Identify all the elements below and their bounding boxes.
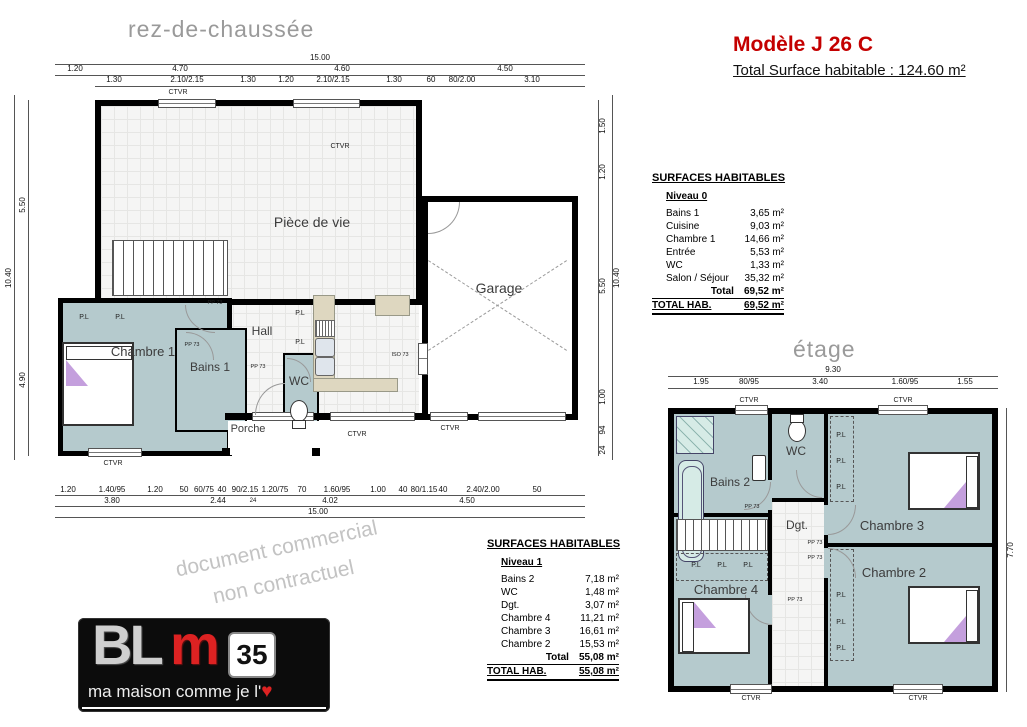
wall <box>768 625 772 686</box>
door-tag: PP 73 <box>808 555 823 562</box>
room-label-chambre2: Chambre 2 <box>862 565 926 580</box>
row-value: 3,07 m² <box>585 599 619 612</box>
room-label-bains2: Bains 2 <box>710 475 750 489</box>
closet-tag: P.L <box>691 562 701 569</box>
dim-label: 7.70 <box>1007 542 1015 558</box>
logo-tagline: ma maison comme je l'♥ <box>88 681 273 703</box>
closet-tag: P.L <box>836 645 846 652</box>
shower-icon <box>676 416 714 454</box>
room-label-chambre3: Chambre 3 <box>860 518 924 533</box>
wall <box>772 498 824 502</box>
logo-m-text: m <box>170 612 220 677</box>
dim-line <box>668 388 998 389</box>
row-name: WC <box>501 586 518 599</box>
row-name: Dgt. <box>501 599 519 612</box>
room-label-chambre4: Chambre 4 <box>694 582 758 597</box>
blm35-logo: BL m 35 ma maison comme je l'♥ <box>78 618 330 712</box>
logo-bl-text: BL <box>92 612 161 677</box>
stairs <box>676 519 768 551</box>
table-heading: SURFACES HABITABLES <box>487 538 619 550</box>
room-label-dgt: Dgt. <box>786 518 808 532</box>
window <box>893 684 943 694</box>
table-level: Niveau 1 <box>501 557 619 568</box>
closet-tag: P.L <box>836 432 846 439</box>
table-row: Dgt.3,07 m² <box>487 599 619 612</box>
toilet-icon <box>788 420 806 442</box>
wall <box>824 414 828 505</box>
wall <box>824 578 828 686</box>
table-row: WC1,48 m² <box>487 586 619 599</box>
bed-fold <box>944 482 966 508</box>
window <box>730 684 772 694</box>
bed-pillow <box>966 590 978 642</box>
dim-label: 1.55 <box>956 378 974 386</box>
table-row: Chambre 316,61 m² <box>487 625 619 638</box>
logo-tagline-text: ma maison comme je l' <box>88 682 261 701</box>
bed-fold <box>944 616 966 642</box>
grand-label: TOTAL HAB. <box>487 665 546 679</box>
row-value: 15,53 m² <box>580 638 619 651</box>
table-row: Bains 27,18 m² <box>487 573 619 586</box>
table-total-row: Total55,08 m² <box>487 651 619 665</box>
dim-label: 3.40 <box>811 378 829 386</box>
row-name: Chambre 4 <box>501 612 550 625</box>
wall <box>828 543 992 547</box>
wall <box>768 414 772 480</box>
door-tag: PP 73 <box>745 504 760 511</box>
dim-label: 1.60/95 <box>891 378 920 386</box>
row-value: 1,48 m² <box>585 586 619 599</box>
bed-pillow <box>682 602 694 652</box>
washbasin-icon <box>752 455 766 481</box>
door-tag: PP 73 <box>788 597 803 604</box>
window-tag: CTVR <box>908 695 927 702</box>
page: rez-de-chaussée Modèle J 26 C Total Surf… <box>0 0 1027 727</box>
bed <box>908 586 980 644</box>
bed-fold <box>694 602 716 628</box>
dim-line <box>668 376 998 377</box>
closet-tag: P.L <box>836 458 846 465</box>
row-name: Chambre 2 <box>501 638 550 651</box>
row-value: 16,61 m² <box>580 625 619 638</box>
window-tag: CTVR <box>739 397 758 404</box>
logo-dept-badge: 35 <box>228 632 276 678</box>
closet-tag: P.L <box>717 562 727 569</box>
window <box>735 405 768 415</box>
row-value: 11,21 m² <box>580 612 619 625</box>
table-grand-row: TOTAL HAB.55,08 m² <box>487 665 619 681</box>
toilet-icon <box>790 414 804 423</box>
closet-tag: P.L <box>836 619 846 626</box>
bed <box>908 452 980 510</box>
window <box>878 405 928 415</box>
table-row: Chambre 411,21 m² <box>487 612 619 625</box>
total-value: 55,08 m² <box>579 651 619 664</box>
dim-label: 1.95 <box>692 378 710 386</box>
window-tag: CTVR <box>893 397 912 404</box>
dim-label: 80/95 <box>738 378 760 386</box>
heart-icon: ♥ <box>261 681 272 702</box>
row-name: Bains 2 <box>501 573 534 586</box>
table-row: Chambre 215,53 m² <box>487 638 619 651</box>
logo-baseline <box>82 707 326 709</box>
bed-pillow <box>966 456 978 508</box>
door-tag: PP 73 <box>808 540 823 547</box>
closet-tag: P.L <box>743 562 753 569</box>
total-label: Total <box>546 651 569 664</box>
row-value: 7,18 m² <box>585 573 619 586</box>
closet-tag: P.L <box>836 484 846 491</box>
closet-tag: P.L <box>836 592 846 599</box>
bed <box>678 598 750 654</box>
wall <box>768 510 772 595</box>
window-tag: CTVR <box>741 695 760 702</box>
grand-value: 55,08 m² <box>579 665 619 679</box>
row-name: Chambre 3 <box>501 625 550 638</box>
room-label-wc-etage: WC <box>786 444 806 458</box>
dim-label: 9.30 <box>824 366 842 374</box>
surfaces-table-niveau1: SURFACES HABITABLES Niveau 1 Bains 27,18… <box>487 538 619 681</box>
